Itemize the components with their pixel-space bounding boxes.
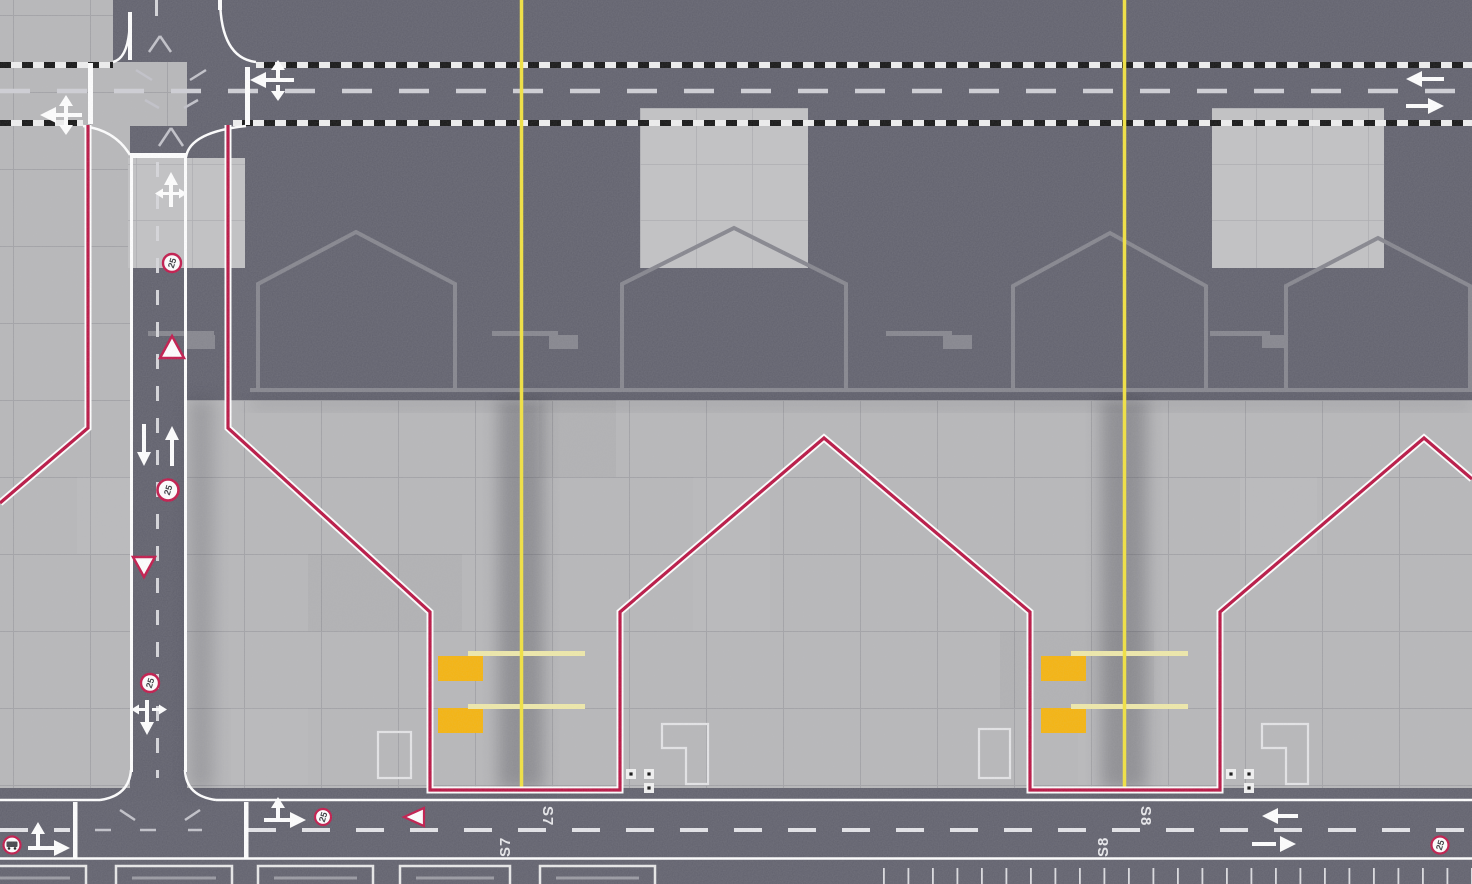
vehicle-icon — [7, 842, 18, 848]
stop-block-marking — [1041, 708, 1086, 733]
speed-limit-25-marking: 25 — [163, 254, 181, 272]
speed-limit-25-marking: 25 — [1432, 837, 1449, 854]
concrete-pad[interactable] — [640, 108, 808, 268]
stand-bar-marking — [468, 704, 585, 709]
stop-bar — [244, 802, 249, 858]
stand-label-s8: S8 — [1095, 837, 1112, 857]
stop-bar — [130, 153, 187, 158]
speed-limit-25-marking: 25 — [141, 674, 159, 692]
stand-label-s8: S8 — [1137, 806, 1154, 826]
concrete-pad[interactable] — [1212, 108, 1384, 268]
stop-bar — [88, 63, 93, 124]
checkered-edge-line — [233, 120, 1472, 126]
vehicle-restriction-marking — [4, 837, 21, 854]
airport-map[interactable]: S7 S7 S8 S8 — [0, 0, 1472, 884]
stand-label-s7: S7 — [539, 806, 556, 826]
stand-bar-marking — [1071, 651, 1188, 656]
stop-bar — [73, 802, 78, 858]
stop-block-marking — [438, 656, 483, 681]
stop-block-marking — [1041, 656, 1086, 681]
checkered-edge-line — [256, 62, 1472, 68]
stand-bar-marking — [468, 651, 585, 656]
speed-limit-25-marking: 25 — [158, 480, 179, 501]
game-viewport[interactable]: S7 S7 S8 S8 — [0, 0, 1472, 884]
stand-label-s7: S7 — [497, 837, 514, 857]
speed-limit-25-marking: 25 — [315, 809, 331, 825]
stop-bar — [245, 67, 250, 125]
checkered-edge-line — [0, 62, 113, 68]
stop-block-marking — [438, 708, 483, 733]
stall-tick-marks — [883, 868, 1472, 884]
stand-bar-marking — [1071, 704, 1188, 709]
